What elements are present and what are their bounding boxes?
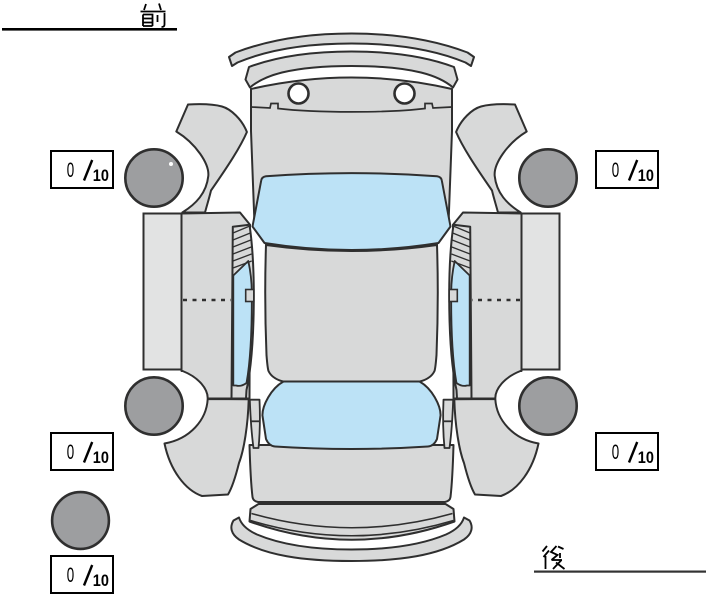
svg-text:0: 0 xyxy=(67,158,74,182)
svg-text:10: 10 xyxy=(93,167,109,185)
